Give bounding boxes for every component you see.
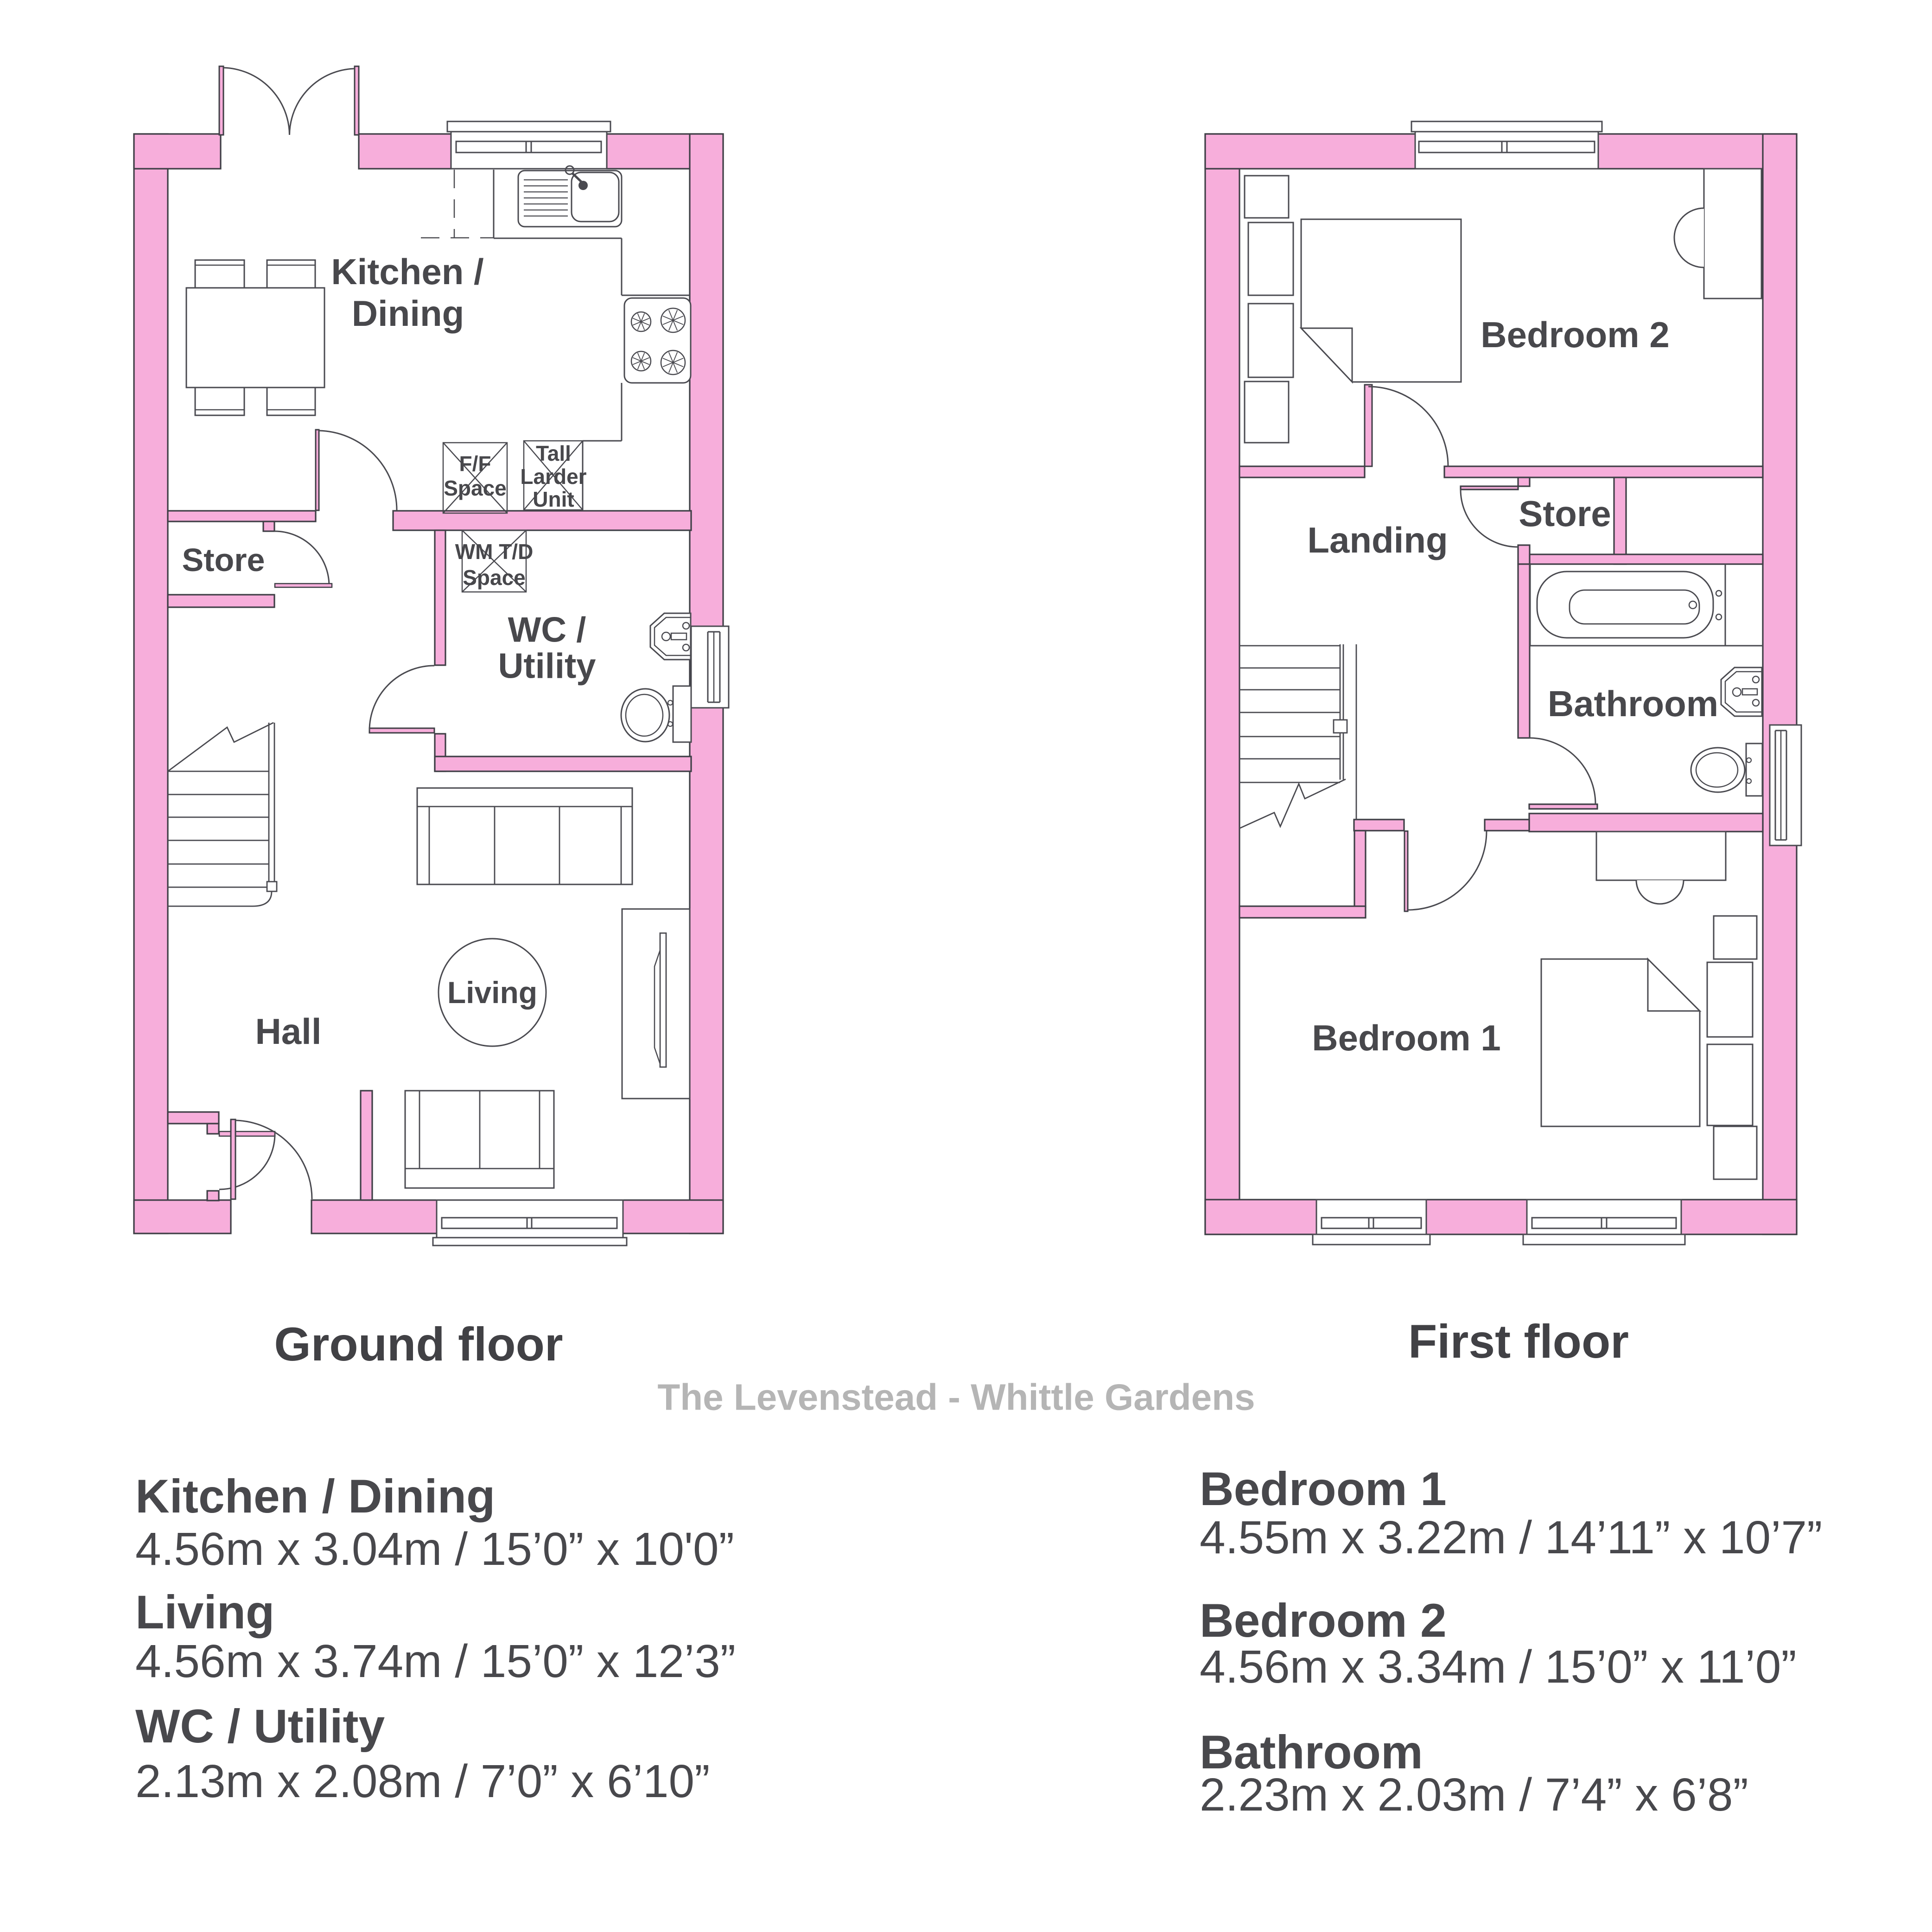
svg-text:F/F: F/F — [459, 451, 491, 476]
svg-text:First floor: First floor — [1408, 1315, 1629, 1368]
svg-text:Bedroom 2: Bedroom 2 — [1481, 314, 1669, 355]
svg-text:Living: Living — [135, 1586, 274, 1639]
svg-text:Unit: Unit — [533, 487, 574, 511]
svg-text:Kitchen /: Kitchen / — [331, 251, 483, 292]
svg-text:Space: Space — [463, 566, 526, 590]
svg-text:Kitchen / Dining: Kitchen / Dining — [135, 1470, 495, 1523]
svg-text:4.56m x 3.74m / 15’0” x 12’3”: 4.56m x 3.74m / 15’0” x 12’3” — [135, 1635, 736, 1687]
svg-text:Tall: Tall — [536, 441, 571, 465]
svg-text:Dining: Dining — [352, 293, 464, 334]
svg-text:WC / Utility: WC / Utility — [135, 1700, 385, 1753]
svg-text:4.56m x 3.04m / 15’0” x 10'0”: 4.56m x 3.04m / 15’0” x 10'0” — [135, 1523, 734, 1575]
svg-text:Bathroom: Bathroom — [1548, 683, 1718, 724]
svg-text:Larder: Larder — [520, 464, 586, 489]
svg-text:Landing: Landing — [1307, 520, 1448, 560]
svg-text:WM T/D: WM T/D — [455, 540, 534, 564]
svg-text:4.55m x 3.22m / 14’11” x 10’7”: 4.55m x 3.22m / 14’11” x 10’7” — [1200, 1512, 1822, 1563]
svg-text:Bedroom 1: Bedroom 1 — [1200, 1462, 1447, 1515]
svg-text:Store: Store — [182, 542, 265, 578]
svg-text:Bedroom 2: Bedroom 2 — [1200, 1594, 1447, 1647]
svg-text:Bedroom 1: Bedroom 1 — [1312, 1017, 1500, 1058]
svg-text:Living: Living — [447, 975, 537, 1010]
svg-text:2.23m x 2.03m / 7’4” x 6’8”: 2.23m x 2.03m / 7’4” x 6’8” — [1200, 1769, 1748, 1821]
svg-text:Utility: Utility — [498, 647, 596, 686]
svg-text:The Levenstead - Whittle Garde: The Levenstead - Whittle Gardens — [657, 1377, 1255, 1418]
svg-text:Space: Space — [444, 476, 507, 500]
svg-text:WC /: WC / — [508, 610, 586, 650]
svg-text:Hall: Hall — [255, 1011, 321, 1052]
svg-text:Ground floor: Ground floor — [274, 1318, 563, 1371]
svg-text:Store: Store — [1519, 493, 1611, 534]
svg-text:4.56m x 3.34m / 15’0” x 11’0”: 4.56m x 3.34m / 15’0” x 11’0” — [1200, 1641, 1797, 1693]
svg-text:2.13m x 2.08m / 7’0” x 6’10”: 2.13m x 2.08m / 7’0” x 6’10” — [135, 1755, 710, 1807]
